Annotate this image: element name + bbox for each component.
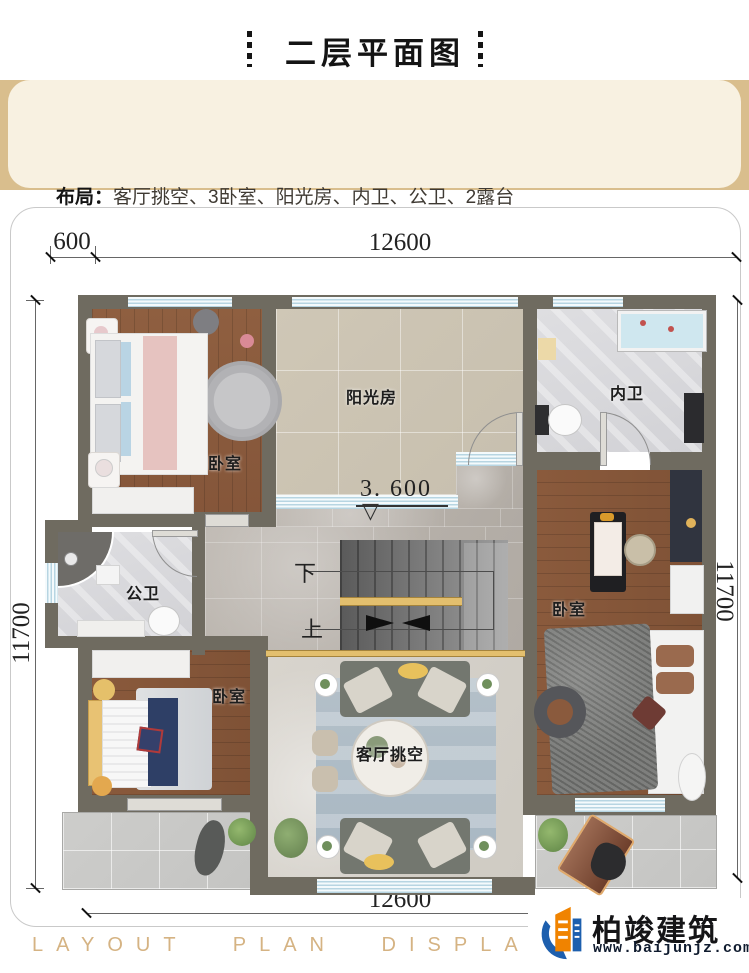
- decor: [600, 513, 614, 521]
- dresser: [670, 565, 704, 614]
- pouf: [93, 679, 115, 701]
- plant: [479, 841, 489, 851]
- pillow: [95, 340, 121, 398]
- window: [45, 563, 58, 603]
- living-label: 客厅挑空: [356, 741, 424, 765]
- sofa: [340, 661, 470, 717]
- sink: [538, 338, 556, 360]
- inner-bath-label: 内卫: [610, 380, 644, 404]
- cushion: [416, 821, 467, 870]
- window: [128, 297, 232, 307]
- stair-cutline: [305, 571, 494, 630]
- door-leaf: [516, 412, 523, 466]
- toilet: [548, 404, 582, 436]
- decor: [640, 320, 646, 326]
- info-box: 布局：客厅挑空、3卧室、阳光房、内卫、公卫、2露台 ◆本层建筑面积:125.24…: [8, 80, 741, 188]
- window: [575, 798, 665, 812]
- bathtub: [618, 311, 706, 351]
- pillow: [136, 726, 163, 753]
- round-table-top: [547, 699, 573, 725]
- stair-arrow-icon: [402, 615, 430, 631]
- public-bath-label: 公卫: [126, 580, 160, 604]
- toilet-tank: [535, 405, 549, 435]
- decor: [95, 459, 113, 477]
- wall: [523, 295, 537, 470]
- plant: [320, 679, 330, 689]
- layout-value: 客厅挑空、3卧室、阳光房、内卫、公卫、2露台: [113, 187, 514, 208]
- door-leaf: [600, 412, 607, 466]
- plant: [538, 818, 568, 852]
- tray: [398, 663, 428, 679]
- wall: [45, 520, 92, 532]
- brand-url: www.baijunjz.com: [593, 940, 749, 957]
- window: [553, 297, 623, 307]
- hall-floor: [276, 509, 523, 527]
- pillow: [121, 342, 131, 396]
- pillow: [656, 672, 694, 694]
- door-leaf: [152, 530, 198, 537]
- wardrobe: [670, 470, 702, 562]
- layout-line: 布局：客厅挑空、3卧室、阳光房、内卫、公卫、2露台: [56, 182, 514, 209]
- floorplan-page: 二层平面图 布局：客厅挑空、3卧室、阳光房、内卫、公卫、2露台 ◆本层建筑面积:…: [0, 0, 749, 973]
- bedroom-bl-label: 卧室: [212, 683, 246, 707]
- dim-11700-left: 11700: [8, 598, 36, 668]
- pouf: [193, 309, 219, 335]
- toilet: [148, 606, 180, 636]
- stair-arrow-icon: [366, 615, 394, 631]
- void-railing: [266, 650, 525, 657]
- page-title: 二层平面图: [240, 28, 510, 73]
- wardrobe: [92, 650, 190, 678]
- desk: [594, 522, 622, 576]
- title-dash-right-icon: [478, 31, 483, 67]
- window: [317, 879, 492, 893]
- bedroom-r-label: 卧室: [552, 596, 586, 620]
- wardrobe: [92, 487, 194, 514]
- decor: [668, 326, 674, 332]
- plant: [274, 818, 308, 858]
- door-leaf: [205, 514, 249, 527]
- tray: [364, 854, 394, 870]
- sliding-door: [127, 798, 222, 811]
- dim-line-top: [50, 257, 737, 258]
- dim-600: 600: [42, 228, 102, 256]
- pillow: [656, 645, 694, 667]
- stairs-down-label: 下: [294, 556, 316, 588]
- bath-cabinet: [684, 393, 704, 443]
- wall: [78, 636, 262, 650]
- terrace-left-floor: [62, 812, 258, 890]
- brand-logo-icon: [534, 902, 592, 964]
- stairs-up-label: 上: [301, 612, 323, 644]
- desk-chair: [624, 534, 656, 566]
- plant: [228, 818, 256, 846]
- stool: [312, 730, 338, 756]
- cushion: [342, 666, 393, 715]
- round-rug: [202, 361, 282, 441]
- window: [292, 297, 518, 307]
- wall: [523, 452, 600, 470]
- sunroom-label: 阳光房: [346, 384, 397, 408]
- shower-head: [64, 552, 78, 566]
- dim-12600-top: 12600: [345, 229, 455, 257]
- dim-line-left: [35, 300, 36, 888]
- decor: [686, 518, 696, 528]
- plant: [322, 841, 332, 851]
- brand-watermark: 柏竣建筑 www.baijunjz.com: [528, 898, 749, 968]
- pouf: [240, 334, 254, 348]
- bedroom-tl-label: 卧室: [208, 450, 242, 474]
- blanket: [143, 336, 177, 470]
- stool: [312, 766, 338, 792]
- hall-floor: [456, 466, 523, 509]
- pillow: [121, 402, 131, 456]
- wall: [523, 470, 537, 815]
- wall: [702, 295, 716, 815]
- bath-mat: [96, 565, 120, 585]
- layout-label: 布局：: [56, 187, 113, 208]
- level-triangle-icon: ▽: [362, 498, 379, 524]
- plant: [482, 679, 492, 689]
- vanity: [77, 620, 145, 637]
- sofa: [340, 818, 470, 874]
- oval-rug: [678, 753, 706, 801]
- pouf: [92, 776, 112, 796]
